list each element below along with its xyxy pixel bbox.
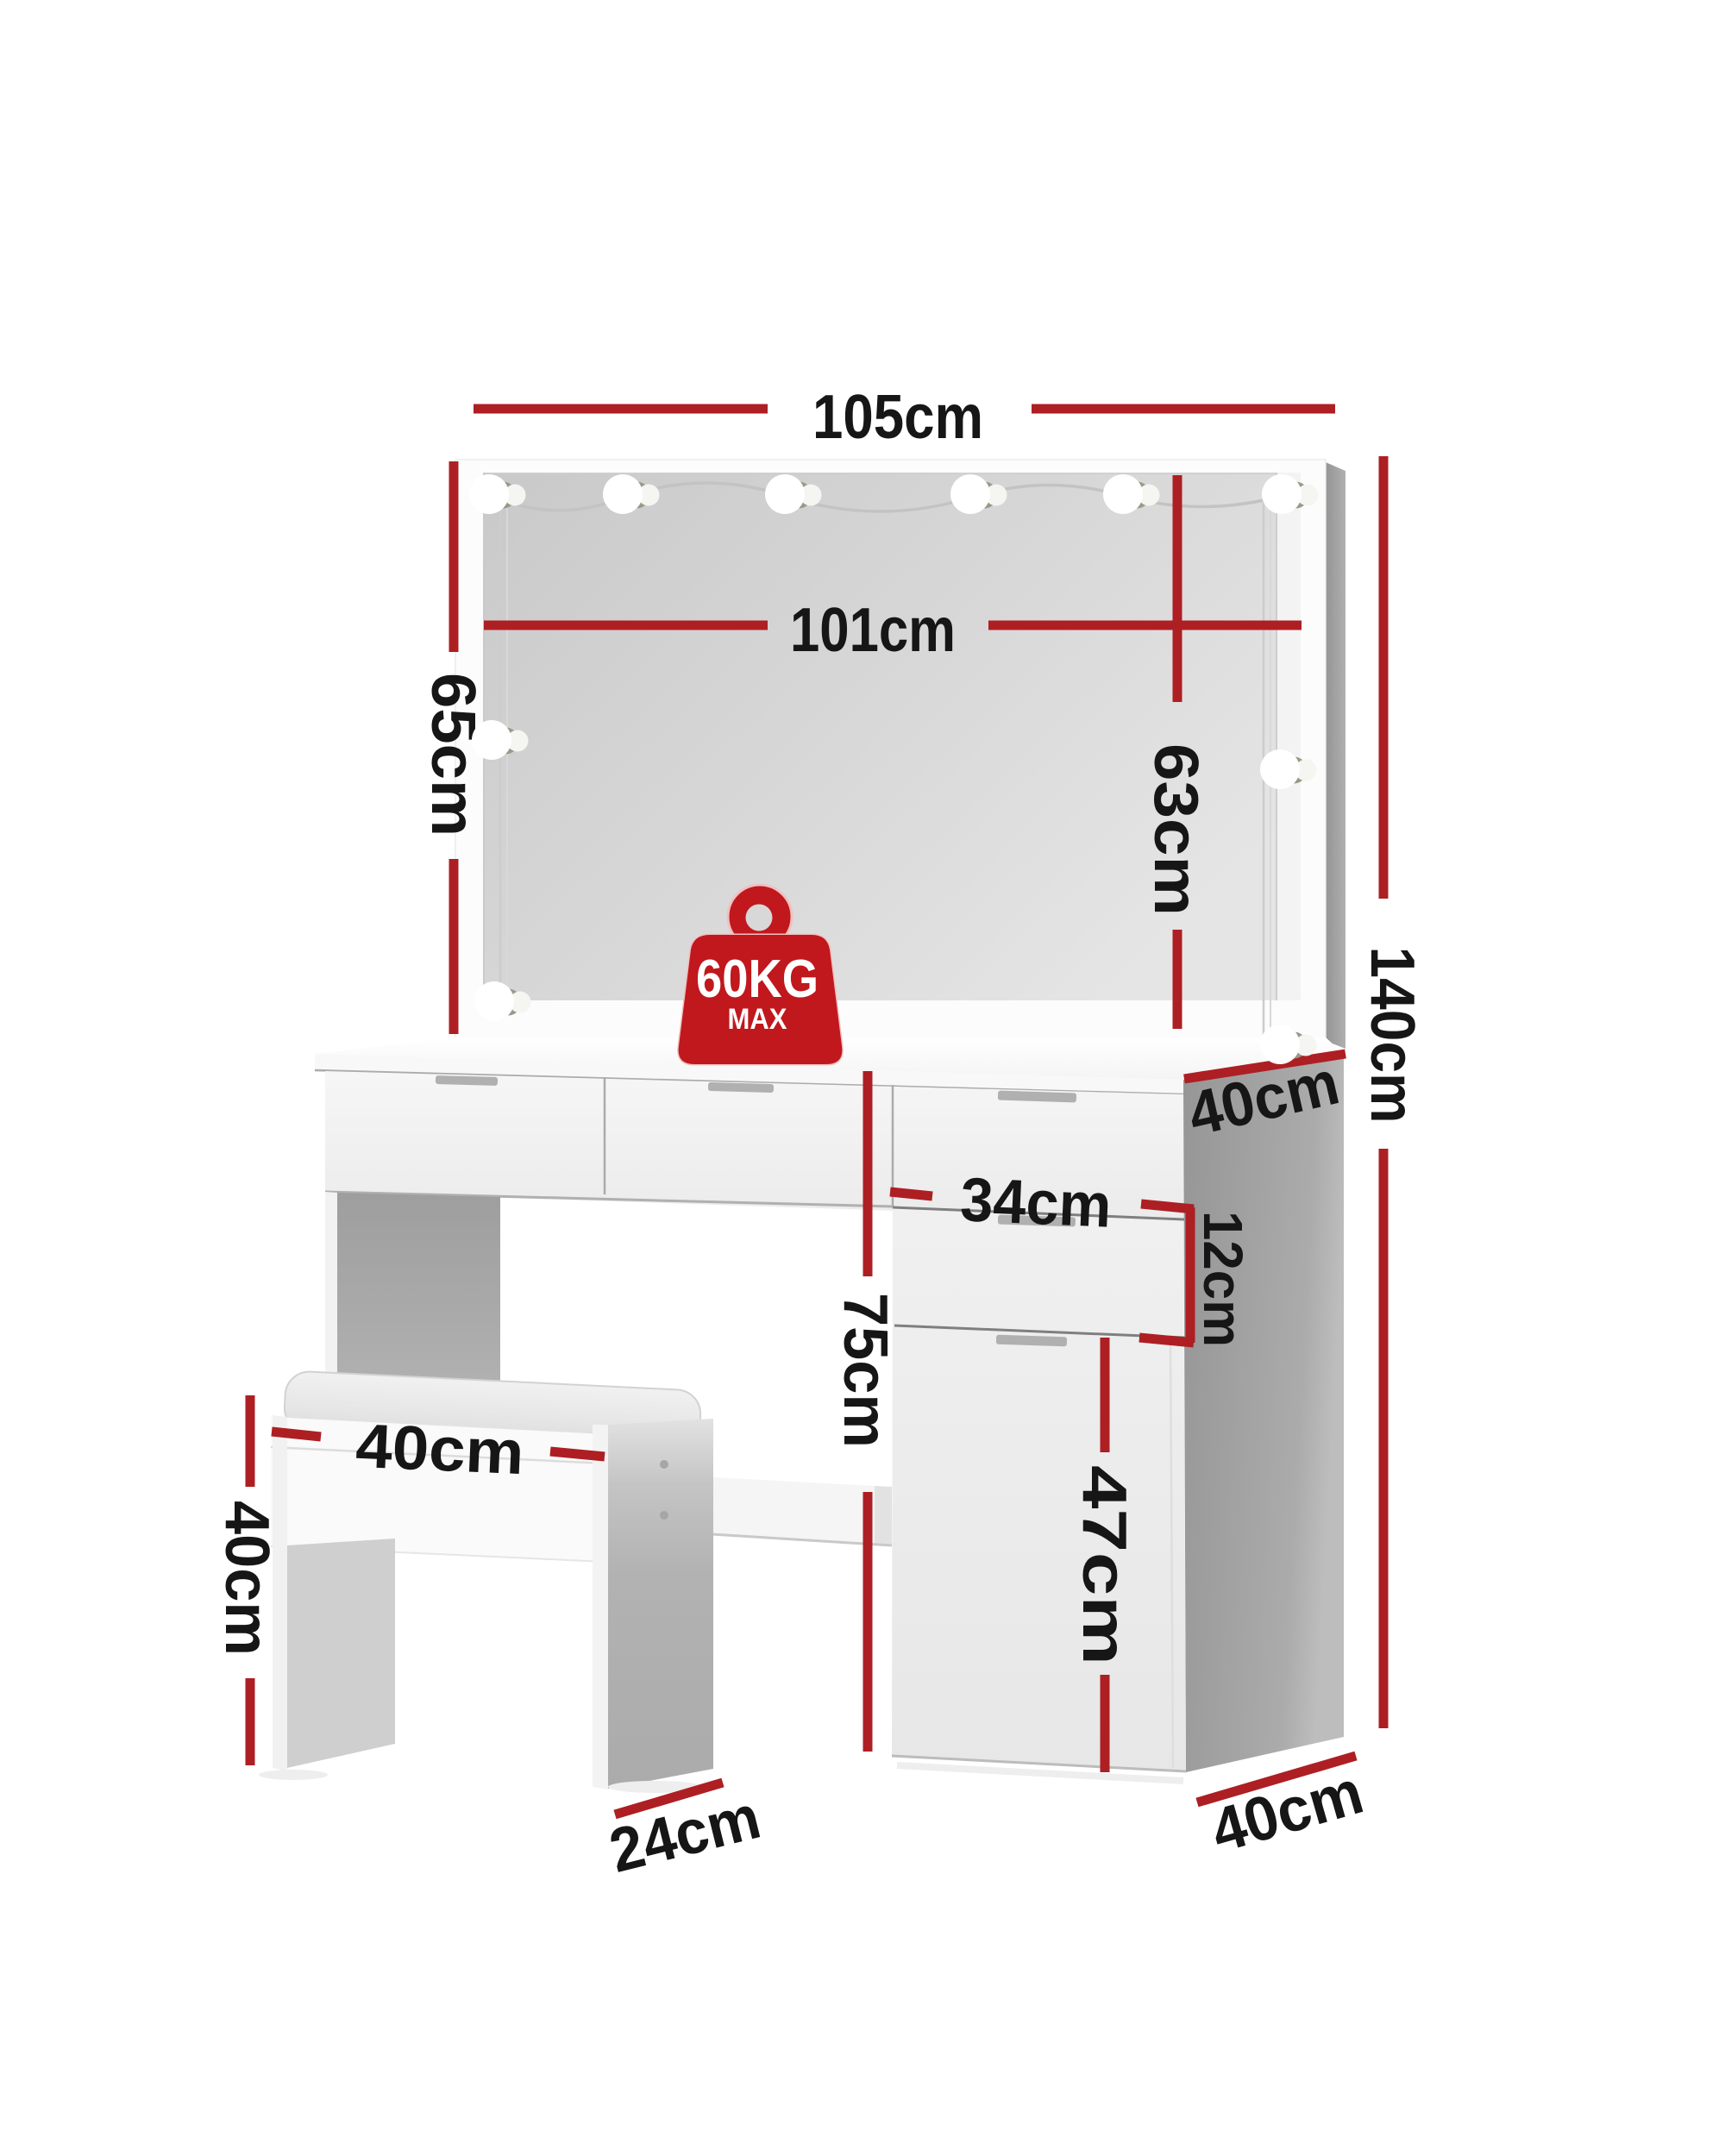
svg-text:40cm: 40cm bbox=[212, 1501, 281, 1656]
svg-text:105cm: 105cm bbox=[812, 383, 983, 452]
svg-text:34cm: 34cm bbox=[959, 1165, 1113, 1241]
svg-text:101cm: 101cm bbox=[790, 596, 956, 665]
svg-text:47cm: 47cm bbox=[1069, 1465, 1138, 1665]
svg-text:12cm: 12cm bbox=[1192, 1211, 1254, 1347]
svg-text:60KG: 60KG bbox=[696, 950, 819, 1009]
svg-text:75cm: 75cm bbox=[831, 1293, 900, 1448]
svg-text:63cm: 63cm bbox=[1141, 743, 1210, 916]
svg-text:MAX: MAX bbox=[728, 1003, 787, 1036]
svg-text:140cm: 140cm bbox=[1358, 947, 1427, 1124]
svg-text:40cm: 40cm bbox=[354, 1412, 525, 1488]
svg-text:65cm: 65cm bbox=[418, 673, 487, 837]
